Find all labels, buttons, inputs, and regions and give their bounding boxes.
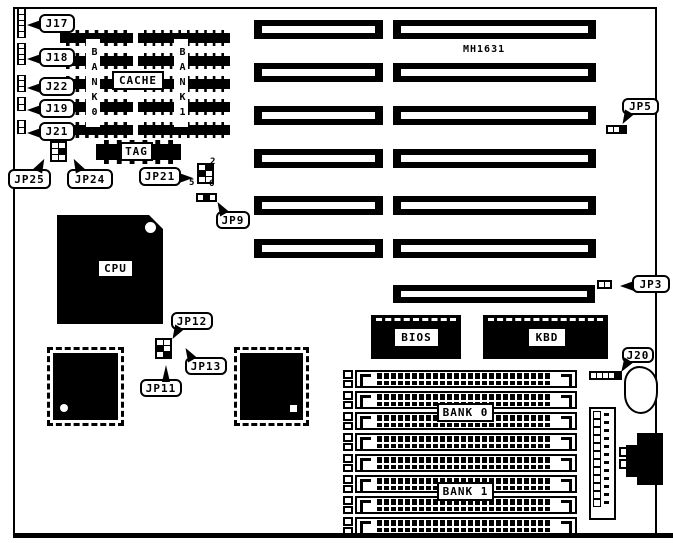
callout-arrow [179,173,193,183]
isa-slot-row [254,149,596,168]
simm-latch-left [360,458,371,471]
callout-arrow [27,105,41,115]
callout-arrow [27,20,41,30]
isa-slot-segment [393,239,596,258]
pad [593,443,601,451]
battery-footprint [624,366,658,414]
isa-slot-row [254,63,596,82]
jumper-pad [204,195,209,200]
simm-latch-right [561,374,572,387]
pad [343,475,353,484]
jumper-pad [199,171,205,176]
simm-end-pads [343,412,353,430]
jumper-pad [615,373,620,378]
jp21-pin2-label: 2 [210,158,215,167]
pad [343,401,353,410]
jumper-pad [597,373,602,378]
isa-slot-segment [254,63,383,82]
callout-arrow [27,128,41,138]
simm-socket [343,517,577,535]
pad [593,491,601,499]
pad [593,475,601,483]
jumper-pad [164,346,170,351]
slot-opening [401,245,588,252]
callout-jp24: JP24 [67,169,113,189]
slot-opening [262,245,375,252]
jumper-pad [59,143,65,148]
jumper-pad [609,373,614,378]
isa-slot-segment [393,149,596,168]
simm-pin-band [377,436,551,448]
slot-opening [401,26,588,33]
callout-text: JP9 [222,214,245,227]
connector-pin [19,98,24,104]
slot-opening [401,291,587,297]
chip-pin-stripe [376,318,456,321]
simm-latch-left [360,500,371,513]
jumper-jp5 [606,125,627,134]
callout-text: J17 [46,17,69,30]
isa-slot-row [254,196,596,215]
simm-socket [343,433,577,451]
simm-body [355,454,577,472]
connector-j22 [17,75,26,92]
pad [593,419,601,427]
connector-j17 [17,8,26,38]
connector-pin [19,76,24,80]
jumper-jp9 [196,193,217,202]
isa-slot-segment [254,106,383,125]
connector-j20 [589,371,622,380]
pad [343,464,353,473]
board-model-label: MH1631 [463,44,505,55]
callout-text: JP24 [75,173,106,186]
simm-body [355,433,577,451]
simm-latch-right [561,521,572,534]
jumper-block-jp24-jp25 [50,141,67,162]
jumper-pad [603,373,608,378]
simm-end-pads [343,391,353,409]
slot-opening [401,112,588,119]
power-pin-row [593,435,612,442]
jumper-block-jp11-jp12-jp13 [155,338,172,359]
jumper-pad [157,346,163,351]
isa-slot-segment [393,20,596,39]
pad [343,485,353,494]
cache-bank1-label: BANK1 [174,39,188,127]
isa-slot-segment [254,20,383,39]
connector-j18 [17,43,26,65]
callout-jp9: JP9 [216,211,250,229]
isa-slot-row [254,20,596,39]
callout-jp11: JP11 [140,379,182,397]
callout-j21: J21 [39,122,75,141]
qfp-pin1-dot [290,405,297,412]
jumper-pad [157,340,163,345]
simm-body [355,517,577,535]
pin-tick [604,453,609,456]
callout-text: JP21 [145,170,176,183]
simm-end-pads [343,433,353,451]
chip-pin-stripe [488,318,603,321]
callout-jp3: JP3 [632,275,670,293]
pad [343,506,353,515]
pad [343,380,353,389]
jumper-pad [591,373,596,378]
pad [593,411,601,419]
kbd-label: KBD [529,329,565,346]
jumper-pad [206,171,212,176]
simm-latch-left [360,374,371,387]
callout-j20: J20 [622,347,654,363]
power-pin-row [593,483,612,490]
qfp-chip-left [53,353,118,420]
power-pin-row [593,459,612,466]
callout-jp12: JP12 [171,312,213,330]
callout-text: J20 [627,349,650,362]
din-stud [619,447,628,457]
qfp-chip-right [240,353,303,420]
jumper-jp3 [597,280,612,289]
pad [593,483,601,491]
callout-j17: J17 [39,14,75,33]
simm-body [355,370,577,388]
simm-latch-left [360,416,371,429]
callout-text: JP5 [629,100,652,113]
pad [593,499,601,507]
pad [343,527,353,536]
jumper-pad [198,195,203,200]
pad [343,496,353,505]
simm-pin-band [377,373,551,385]
simm-latch-right [561,479,572,492]
pad [593,451,601,459]
board-edge-left [13,7,15,538]
power-pin-row [593,491,612,498]
simm-latch-left [360,479,371,492]
simm-latch-right [561,395,572,408]
callout-j22: J22 [39,77,75,96]
isa-slot-segment [393,196,596,215]
isa-slot-row [254,106,596,125]
pad [343,454,353,463]
motherboard-diagram: MH1631 BANK0 BANK1 CACHE TAG [0,0,673,543]
jp21-pin6-label: 6 [209,180,214,189]
pin-tick [604,413,609,416]
callout-text: J22 [46,80,69,93]
simm-socket [343,454,577,472]
pin-tick [604,437,609,440]
slot-opening [401,69,588,76]
jumper-pad [164,340,170,345]
simm-socket [343,370,577,388]
callout-jp13: JP13 [185,357,227,375]
pad [343,370,353,379]
connector-pin [19,105,24,111]
power-pin-row [593,427,612,434]
cpu-label: CPU [97,259,134,278]
callout-text: JP25 [14,173,45,186]
jumper-pad [157,352,163,357]
pin-tick [604,477,609,480]
slot-opening [401,155,588,162]
power-pin-row [593,411,612,418]
power-connector [589,407,616,520]
jumper-pad [599,282,604,287]
callout-jp25: JP25 [8,169,51,189]
power-pin-row [593,443,612,450]
connector-pin [19,32,24,37]
jumper-pad [614,127,619,132]
keyboard-din-connector [637,433,663,485]
jumper-pad [199,165,205,170]
pad [593,467,601,475]
connector-pin [19,55,24,59]
pad [343,412,353,421]
pin-tick [604,461,609,464]
callout-arrow [27,54,41,64]
connector-pin [19,44,24,48]
isa-slot-row [254,239,596,258]
simm-end-pads [343,370,353,388]
pad [343,433,353,442]
callout-text: JP3 [640,278,663,291]
callout-text: JP13 [191,360,222,373]
pad [343,517,353,526]
pin-tick [604,421,609,424]
callout-text: J18 [46,51,69,64]
simm-latch-left [360,437,371,450]
simm-end-pads [343,517,353,535]
simm-pin-band [377,520,551,532]
connector-pin [19,9,24,14]
isa-slot-row [254,285,596,304]
pad [343,391,353,400]
slot-opening [262,69,375,76]
jumper-pad [59,155,65,160]
isa-slot-segment [254,196,383,215]
slot-opening [262,155,375,162]
jumper-pad [52,143,58,148]
callout-arrow [620,281,634,291]
connector-pin [19,121,24,127]
cpu-pin1-dot [145,222,156,233]
simm-socket-bank [343,370,577,535]
callout-text: JP12 [177,315,208,328]
simm-end-pads [343,496,353,514]
simm-latch-left [360,395,371,408]
connector-pin [19,60,24,64]
power-pin-row [593,419,612,426]
simm-latch-right [561,416,572,429]
power-pin-row [593,475,612,482]
callout-text: J21 [46,125,69,138]
callout-jp21: JP21 [139,167,181,186]
simm-latch-left [360,521,371,534]
pin-tick [604,429,609,432]
pin-tick [604,501,609,504]
simm-end-pads [343,454,353,472]
connector-pin [19,49,24,53]
isa-slot-segment [393,63,596,82]
callout-j19: J19 [39,99,75,118]
simm-pin-band [377,457,551,469]
slot-opening [401,202,588,209]
callout-text: J19 [46,102,69,115]
pin-tick [604,485,609,488]
connector-pin [19,81,24,85]
callout-arrow [33,156,48,173]
connector-pin [19,128,24,134]
callout-arrow [27,83,41,93]
connector-pin [19,21,24,26]
simm-bank0-label: BANK 0 [437,403,494,422]
simm-end-pads [343,475,353,493]
isa-slot-segment [393,285,595,303]
connector-pin [19,87,24,91]
pad [593,427,601,435]
pad [593,459,601,467]
pad [343,443,353,452]
connector-pin [19,15,24,20]
isa-slot-segment [254,239,383,258]
simm-bank1-label: BANK 1 [437,482,494,501]
slot-opening [262,202,375,209]
qfp-pin1-dot [60,404,68,412]
power-pin-row [593,499,612,506]
pin-tick [604,469,609,472]
callout-jp5: JP5 [622,98,659,115]
connector-pin [19,26,24,31]
connector-j19 [17,97,26,111]
callout-arrow [69,156,84,173]
din-stud [619,459,628,469]
cache-bank0-label: BANK0 [86,39,100,127]
pad [343,422,353,431]
jumper-pad [620,127,625,132]
jumper-pad [605,282,610,287]
jumper-pad [59,149,65,154]
power-pin-row [593,467,612,474]
board-edge-top [13,7,657,9]
isa-slot-segment [393,106,596,125]
jumper-pad [52,155,58,160]
jumper-pad [210,195,215,200]
pin-tick [604,445,609,448]
power-pin-row [593,451,612,458]
jumper-pad [52,149,58,154]
jumper-pad [164,352,170,357]
simm-latch-right [561,458,572,471]
connector-j21 [17,120,26,134]
slot-opening [262,112,375,119]
callout-arrow [162,365,170,382]
slot-opening [262,26,375,33]
simm-latch-right [561,500,572,513]
cache-label: CACHE [112,71,164,90]
pin-tick [604,493,609,496]
jumper-pad [608,127,613,132]
bios-label: BIOS [395,329,438,346]
callout-text: JP11 [146,382,177,395]
jumper-pad [199,177,205,182]
pad [593,435,601,443]
simm-latch-right [561,437,572,450]
isa-slot-segment [254,149,383,168]
tag-label: TAG [120,142,153,161]
callout-j18: J18 [39,48,75,67]
